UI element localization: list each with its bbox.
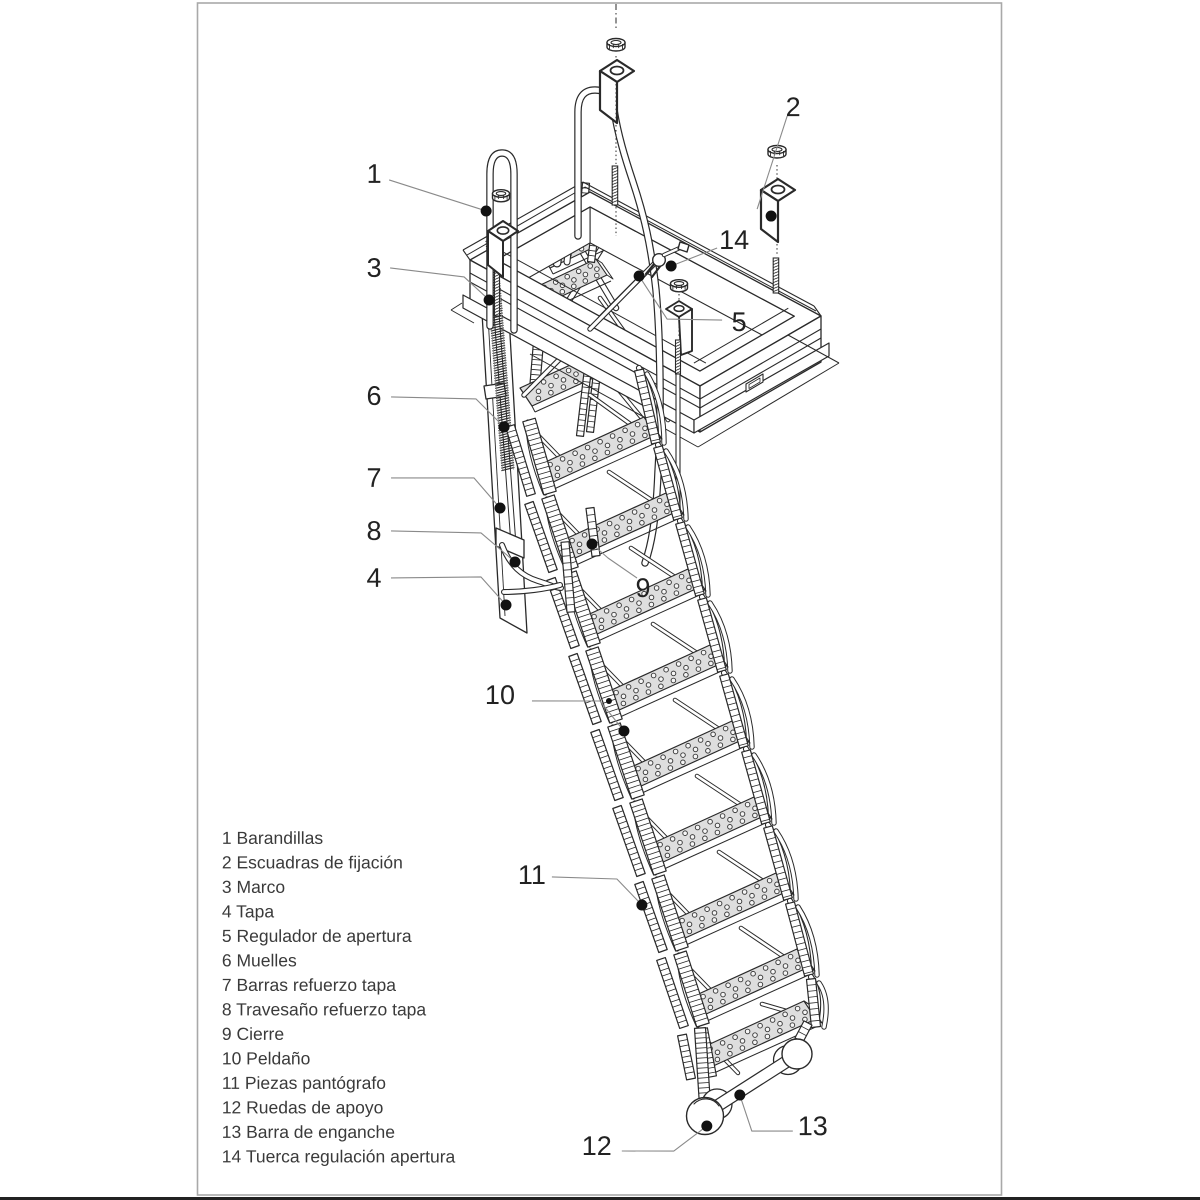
svg-text:8: 8 (367, 516, 382, 546)
svg-text:4: 4 (366, 563, 381, 593)
svg-text:5 Regulador de apertura: 5 Regulador de apertura (222, 926, 412, 946)
svg-text:11 Piezas pantógrafo: 11 Piezas pantógrafo (222, 1073, 386, 1093)
svg-text:9 Cierre: 9 Cierre (222, 1024, 284, 1044)
svg-text:12 Ruedas de apoyo: 12 Ruedas de apoyo (222, 1097, 384, 1117)
svg-text:3: 3 (367, 253, 382, 283)
svg-text:10 Peldaño: 10 Peldaño (222, 1048, 311, 1068)
svg-text:11: 11 (518, 860, 546, 890)
svg-text:7: 7 (367, 463, 382, 493)
svg-text:3 Marco: 3 Marco (222, 877, 285, 897)
svg-text:1: 1 (367, 159, 382, 189)
svg-text:14: 14 (719, 225, 749, 255)
svg-text:1 Barandillas: 1 Barandillas (222, 828, 323, 848)
svg-text:8 Travesaño refuerzo tapa: 8 Travesaño refuerzo tapa (222, 999, 427, 1019)
svg-text:5: 5 (732, 307, 747, 337)
svg-text:13 Barra de enganche: 13 Barra de enganche (222, 1122, 395, 1142)
svg-text:4 Tapa: 4 Tapa (222, 901, 275, 921)
svg-text:6 Muelles: 6 Muelles (222, 950, 297, 970)
svg-text:9: 9 (635, 573, 650, 603)
svg-text:7 Barras refuerzo tapa: 7 Barras refuerzo tapa (222, 975, 396, 995)
svg-text:2 Escuadras de fijación: 2 Escuadras de fijación (222, 852, 403, 872)
svg-text:12: 12 (582, 1131, 612, 1161)
svg-text:2: 2 (786, 92, 801, 122)
svg-text:13: 13 (798, 1111, 828, 1141)
svg-text:10: 10 (485, 680, 515, 710)
svg-text:6: 6 (367, 381, 382, 411)
svg-text:14 Tuerca regulación apertura: 14 Tuerca regulación apertura (222, 1146, 456, 1166)
